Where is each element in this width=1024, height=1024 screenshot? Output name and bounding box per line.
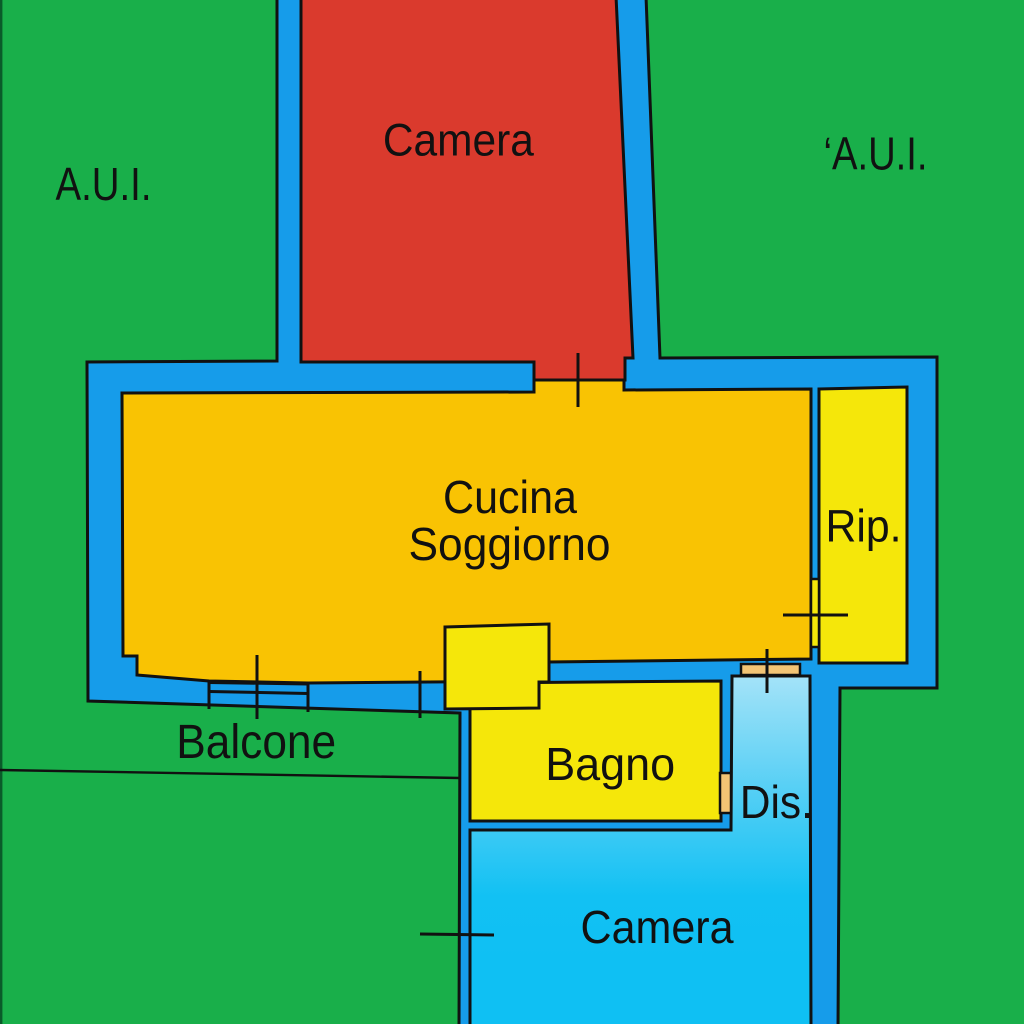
svg-text:Camera: Camera xyxy=(581,901,734,953)
svg-text:Dis.: Dis. xyxy=(740,776,813,828)
svg-text:‘A.U.I.: ‘A.U.I. xyxy=(824,128,928,180)
svg-text:A.U.I.: A.U.I. xyxy=(56,158,152,210)
svg-text:Rip.: Rip. xyxy=(826,501,902,552)
svg-text:Balcone: Balcone xyxy=(176,716,336,769)
svg-text:Camera: Camera xyxy=(383,115,535,166)
svg-text:Cucina: Cucina xyxy=(443,471,577,523)
svg-text:Soggiorno: Soggiorno xyxy=(409,518,611,570)
svg-text:Bagno: Bagno xyxy=(545,738,675,790)
